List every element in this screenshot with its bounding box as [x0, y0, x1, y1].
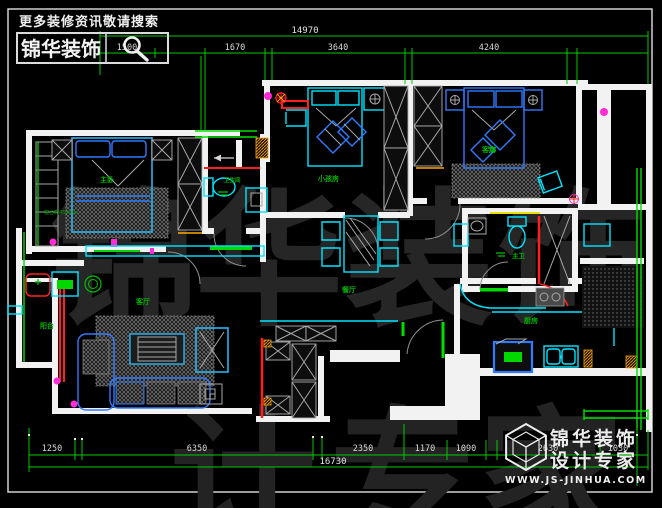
dim-top-seg: 1670 — [225, 43, 245, 53]
sink — [544, 346, 578, 367]
room-label-kitchen: 厨房 — [524, 316, 538, 325]
dim-top-seg: 4240 — [479, 43, 499, 53]
wardrobe — [178, 138, 202, 233]
column — [626, 356, 637, 368]
dimensions-top: 14970 1500 1670 3640 4240 — [100, 26, 648, 130]
footer-website: WWW.JS-JINHUA.COM — [505, 475, 647, 486]
dim-top-overall: 14970 — [291, 26, 318, 36]
dim-top-seg: 3640 — [328, 43, 348, 53]
dim-bottom-seg: 6350 — [187, 444, 207, 454]
arrow-left-icon — [214, 155, 234, 162]
side-table — [364, 88, 386, 110]
wardrobe — [414, 86, 444, 168]
dim-bottom-seg: 1170 — [415, 444, 435, 454]
brand-search-box: 锦华装饰 — [17, 33, 168, 63]
header: 更多装修资讯敬请搜索 锦华装饰 — [17, 14, 168, 63]
brand-name: 锦华装饰 — [21, 37, 101, 61]
room-label-master-bedroom: 主卧 — [100, 175, 114, 184]
nightstand — [152, 140, 172, 160]
room-label-master-bath: 主卫 — [512, 251, 526, 260]
bed-single — [308, 88, 366, 166]
room-label-guest-room: 客房 — [481, 145, 496, 154]
room-label-living: 客厅 — [135, 297, 150, 306]
footer-brand-line1: 锦华装饰 — [550, 427, 638, 450]
search-tagline: 更多装修资讯敬请搜索 — [19, 14, 159, 30]
column — [256, 138, 268, 158]
coffee-table — [130, 334, 184, 364]
door-marker — [600, 108, 608, 116]
desk-chair — [282, 101, 308, 126]
rug — [452, 164, 540, 198]
washing-machine — [26, 274, 50, 296]
cushion-diamond — [317, 118, 366, 153]
nightstand-lamp — [524, 90, 542, 110]
light-marker — [275, 92, 287, 104]
dim-bottom-seg: 2350 — [353, 444, 373, 454]
footer-brand-line2: 设计专家 — [550, 449, 638, 472]
room-label-dining: 餐厅 — [341, 285, 356, 294]
room-label-kids-room: 小孩房 — [317, 174, 339, 183]
nightstand — [52, 140, 72, 160]
sill-height-note: 窗台高450mm — [44, 209, 78, 216]
dim-bottom-seg: 1250 — [42, 444, 62, 454]
lamp-marker — [71, 401, 78, 408]
door-marker — [264, 92, 272, 100]
stove — [536, 288, 564, 306]
wardrobe — [384, 86, 408, 210]
threshold — [480, 288, 508, 292]
column — [584, 350, 592, 367]
tile-floor — [582, 266, 644, 328]
dim-bottom-overall: 16730 — [319, 457, 346, 467]
refrigerator — [494, 339, 532, 372]
bed-double — [464, 88, 524, 168]
nightstand-lamp — [446, 90, 464, 110]
lamp-marker — [54, 378, 61, 385]
room-label-bathroom: 卫生间 — [224, 176, 241, 184]
room-label-balcony: 阳台 — [40, 321, 54, 330]
dim-bottom-seg: 1090 — [456, 444, 476, 454]
lamp-marker — [50, 239, 57, 246]
floorplan-drawing: 锦 华 装 饰 计 专 家 — [0, 0, 662, 508]
light-marker — [569, 194, 579, 204]
